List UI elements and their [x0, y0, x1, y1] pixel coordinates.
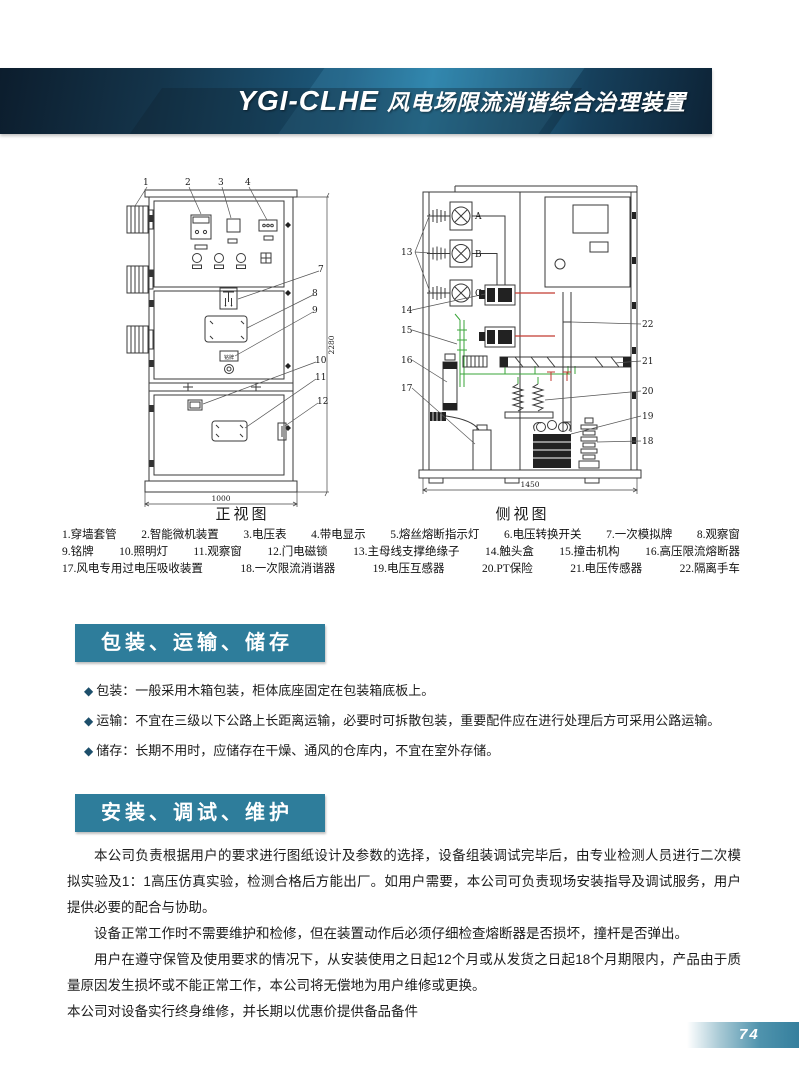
diamond-bullet-icon: ◆ [84, 714, 93, 728]
catalog-page: YGI-CLHE 风电场限流消谐综合治理装置 [0, 0, 799, 1092]
diamond-bullet-icon: ◆ [84, 744, 93, 758]
page-title: YGI-CLHE 风电场限流消谐综合治理装置 [237, 68, 686, 134]
fuse-springs [505, 384, 553, 418]
page-number: 74 [687, 1022, 799, 1047]
busbar-insulators [427, 202, 472, 306]
nameplate-label: 铭牌 [224, 354, 234, 361]
parts-row-2: 9.铭牌 10.照明灯 11.观察窗 12.门电磁锁 13.主母线支撑绝缘子 1… [62, 544, 740, 561]
side-callout-22: 22 [642, 320, 653, 330]
part-item: 7.一次模拟牌 [606, 527, 672, 544]
side-callout-13: 13 [401, 248, 413, 258]
paragraph: 设备正常工作时不需要维护和检修，但在装置动作后必须仔细检查熔断器是否损坏，撞杆是… [67, 921, 741, 947]
surge-absorber [430, 412, 491, 470]
bullet-label: 包装： [96, 683, 135, 698]
phase-c-label: C [475, 289, 482, 299]
side-callout-14: 14 [401, 306, 413, 316]
page-title-model: YGI-CLHE [237, 85, 379, 117]
side-callout-20: 20 [642, 387, 654, 397]
pt-transformer [533, 421, 571, 469]
phase-b-label: B [475, 250, 482, 260]
side-width-dim: 1450 [520, 480, 539, 489]
impact-mechanism [455, 314, 575, 387]
side-callout-21: 21 [642, 357, 653, 367]
parts-legend: 1.穿墙套管 2.智能微机装置 3.电压表 4.带电显示 5.熔丝熔断指示灯 6… [62, 527, 740, 578]
middle-door [154, 291, 284, 379]
door-magnetic-lock [278, 423, 286, 440]
part-item: 6.电压转换开关 [504, 527, 582, 544]
bullet-packing: ◆包装：一般采用木箱包装，柜体底座固定在包装箱底板上。 [84, 676, 746, 706]
part-item: 20.PT保险 [482, 561, 533, 578]
part-item: 15.撞击机构 [559, 544, 619, 561]
front-callout-1: 1 [143, 178, 149, 188]
bullet-label: 储存： [96, 743, 135, 758]
front-view-caption: 正视图 [125, 503, 360, 524]
parts-row-3: 17.风电专用过电压吸收装置 18.一次限流消谐器 19.电压互感器 20.PT… [62, 561, 740, 578]
microcomputer-device [191, 215, 211, 249]
live-display [259, 220, 277, 240]
part-item: 4.带电显示 [311, 527, 366, 544]
hv-fuse [443, 354, 487, 410]
part-item: 1.穿墙套管 [62, 527, 117, 544]
middle-knob [225, 365, 234, 374]
side-callout-16: 16 [401, 356, 413, 366]
front-callout-11: 11 [315, 373, 326, 383]
paragraph: 本公司负责根据用户的要求进行图纸设计及参数的选择，设备组装调试完毕后，由专业检测… [67, 843, 741, 921]
observation-window-bottom [212, 421, 247, 441]
paragraph: 本公司对设备实行终身维修，并长期以优惠价提供备品备件 [67, 999, 741, 1025]
front-view-svg: 1 2 3 4 7 8 9 10 11 12 铭牌 1000 2280 [125, 170, 360, 520]
phase-a-label: A [474, 212, 482, 222]
side-callout-19: 19 [642, 412, 654, 422]
part-item: 2.智能微机装置 [141, 527, 219, 544]
parts-row-1: 1.穿墙套管 2.智能微机装置 3.电压表 4.带电显示 5.熔丝熔断指示灯 6… [62, 527, 740, 544]
front-callout-4: 4 [245, 178, 251, 188]
cabinet-roof [145, 190, 297, 197]
front-callout-7: 7 [318, 265, 324, 275]
front-callout-12: 12 [317, 397, 328, 407]
part-item: 22.隔离手车 [680, 561, 740, 578]
side-callout-15: 15 [401, 326, 413, 336]
section-title-install: 安装、调试、维护 [75, 794, 325, 832]
side-view-drawing: A B C 13 14 15 16 17 22 21 20 19 18 1450 [385, 172, 660, 517]
cabinet-base [145, 481, 297, 492]
bottom-door [154, 395, 284, 475]
bullet-text: 长期不用时，应储存在干燥、通风的仓库内，不宜在室外存储。 [135, 743, 499, 758]
front-width-dim: 1000 [211, 494, 230, 503]
observation-window-middle [205, 316, 247, 342]
red-markers [547, 372, 571, 381]
part-item: 12.门电磁锁 [267, 544, 327, 561]
front-view-drawing: 1 2 3 4 7 8 9 10 11 12 铭牌 1000 2280 [125, 170, 360, 520]
front-height-dim: 2280 [327, 335, 336, 354]
part-item: 14.触头盒 [485, 544, 534, 561]
page-number-tab: 74 [687, 1022, 799, 1048]
front-callout-9: 9 [312, 306, 318, 316]
part-item: 5.熔丝熔断指示灯 [390, 527, 479, 544]
part-item: 17.风电专用过电压吸收装置 [62, 561, 203, 578]
indicator-knobs [193, 253, 272, 269]
part-item: 19.电压互感器 [373, 561, 445, 578]
wall-clips [632, 212, 636, 444]
part-item: 11.观察窗 [193, 544, 241, 561]
bullet-label: 运输： [96, 713, 135, 728]
part-item: 18.一次限流消谐器 [240, 561, 335, 578]
front-callout-8: 8 [312, 289, 318, 299]
header-banner: YGI-CLHE 风电场限流消谐综合治理装置 [0, 68, 712, 134]
voltage-meter [227, 219, 240, 243]
side-cabinet-body [423, 192, 637, 470]
front-callout-2: 2 [185, 178, 191, 188]
side-callout-18: 18 [642, 437, 654, 447]
insulator-stack [579, 418, 599, 468]
page-title-name: 风电场限流消谐综合治理装置 [387, 85, 686, 117]
part-item: 8.观察窗 [697, 527, 740, 544]
side-callout-17: 17 [401, 384, 413, 394]
packing-bullet-list: ◆包装：一般采用木箱包装，柜体底座固定在包装箱底板上。 ◆运输：不宜在三级以下公… [84, 676, 746, 766]
lamp-box [188, 400, 202, 410]
front-callout-3: 3 [218, 178, 224, 188]
diamond-bullet-icon: ◆ [84, 684, 93, 698]
part-item: 3.电压表 [243, 527, 286, 544]
part-item: 21.电压传感器 [570, 561, 642, 578]
side-view-caption: 侧视图 [385, 503, 660, 524]
install-paragraphs: 本公司负责根据用户的要求进行图纸设计及参数的选择，设备组装调试完毕后，由专业检测… [67, 843, 741, 1025]
part-item: 16.高压限流熔断器 [645, 544, 740, 561]
part-item: 10.照明灯 [119, 544, 168, 561]
bullet-transport: ◆运输：不宜在三级以下公路上长距离运输，必要时可拆散包装，重要配件应在进行处理后… [84, 706, 746, 736]
part-item: 9.铭牌 [62, 544, 94, 561]
side-view-svg: A B C 13 14 15 16 17 22 21 20 19 18 1450 [385, 172, 660, 517]
lv-compartment [545, 197, 630, 287]
paragraph: 用户在遵守保管及使用要求的情况下，从安装使用之日起12个月或从发货之日起18个月… [67, 947, 741, 999]
handcart-frame [563, 292, 571, 432]
bullet-text: 不宜在三级以下公路上长距离运输，必要时可拆散包装，重要配件应在进行处理后方可采用… [135, 713, 720, 728]
side-cabinet-base [419, 470, 641, 478]
front-callout-10: 10 [315, 356, 327, 366]
bullet-text: 一般采用木箱包装，柜体底座固定在包装箱底板上。 [135, 683, 434, 698]
section-title-packing: 包装、运输、储存 [75, 624, 325, 662]
bullet-storage: ◆储存：长期不用时，应储存在干燥、通风的仓库内，不宜在室外存储。 [84, 736, 746, 766]
part-item: 13.主母线支撑绝缘子 [353, 544, 459, 561]
divider-recess [149, 383, 293, 391]
top-door [154, 201, 284, 287]
